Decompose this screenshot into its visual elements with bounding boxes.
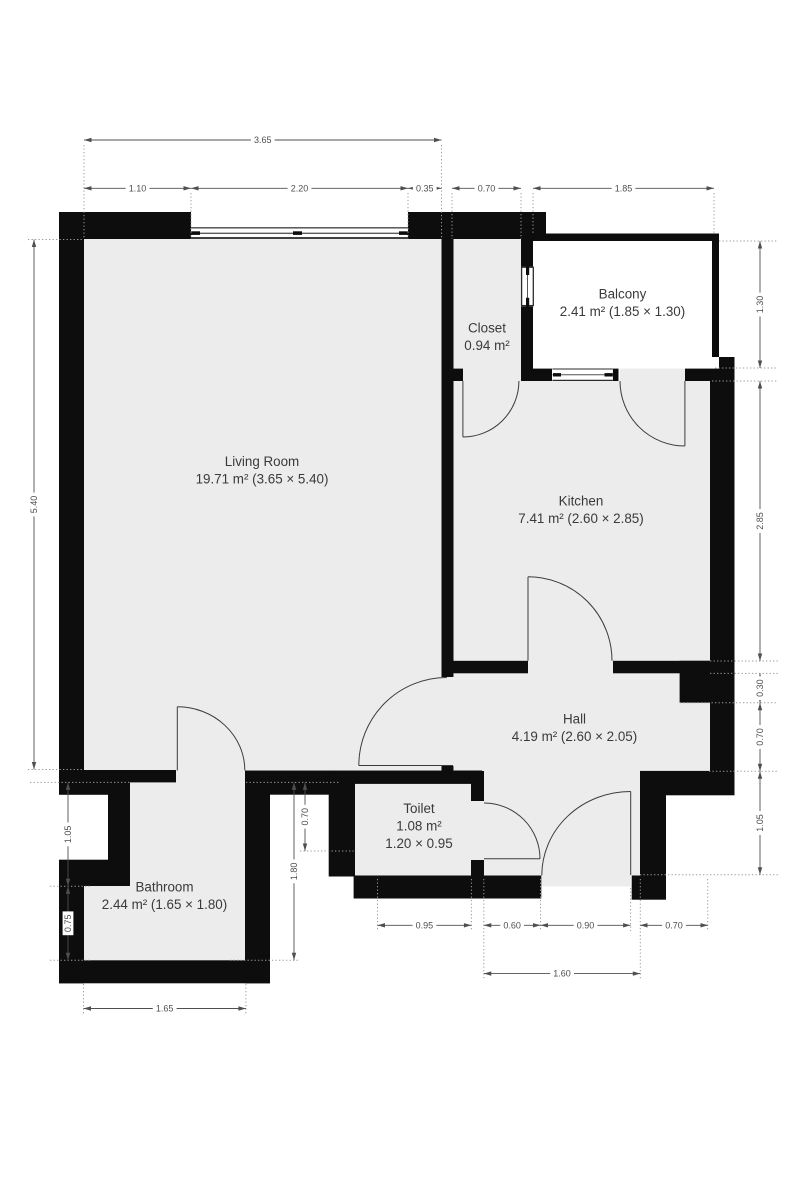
svg-text:19.71 m² (3.65 × 5.40): 19.71 m² (3.65 × 5.40): [196, 472, 329, 487]
svg-text:0.75: 0.75: [63, 915, 73, 933]
svg-text:2.85: 2.85: [755, 512, 765, 530]
svg-text:0.35: 0.35: [416, 183, 434, 193]
svg-text:Toilet: Toilet: [403, 801, 435, 816]
svg-text:0.95: 0.95: [416, 920, 434, 930]
svg-text:0.70: 0.70: [755, 728, 765, 746]
svg-text:1.05: 1.05: [63, 826, 73, 844]
svg-text:1.20 × 0.95: 1.20 × 0.95: [385, 836, 452, 851]
svg-text:1.65: 1.65: [156, 1004, 174, 1014]
svg-text:Balcony: Balcony: [599, 287, 647, 302]
svg-text:0.30: 0.30: [755, 679, 765, 697]
svg-text:1.80: 1.80: [289, 863, 299, 881]
svg-text:0.90: 0.90: [577, 920, 595, 930]
svg-text:0.70: 0.70: [665, 920, 683, 930]
svg-text:1.10: 1.10: [129, 183, 147, 193]
svg-text:0.94 m²: 0.94 m²: [464, 338, 510, 353]
svg-text:2.20: 2.20: [291, 183, 309, 193]
svg-text:1.05: 1.05: [755, 814, 765, 832]
svg-text:4.19 m² (2.60 × 2.05): 4.19 m² (2.60 × 2.05): [512, 729, 637, 744]
svg-text:Living Room: Living Room: [225, 454, 299, 469]
svg-text:0.60: 0.60: [503, 920, 521, 930]
svg-text:0.70: 0.70: [300, 808, 310, 826]
svg-text:2.41 m² (1.85 × 1.30): 2.41 m² (1.85 × 1.30): [560, 304, 685, 319]
svg-text:Kitchen: Kitchen: [559, 494, 604, 509]
svg-text:Hall: Hall: [563, 712, 586, 727]
svg-text:1.30: 1.30: [755, 296, 765, 314]
svg-text:3.65: 3.65: [254, 135, 272, 145]
svg-text:1.08 m²: 1.08 m²: [396, 819, 442, 834]
svg-text:Closet: Closet: [468, 321, 506, 336]
svg-text:5.40: 5.40: [29, 496, 39, 514]
svg-text:1.60: 1.60: [553, 969, 571, 979]
svg-text:7.41 m² (2.60 × 2.85): 7.41 m² (2.60 × 2.85): [518, 511, 643, 526]
svg-text:0.70: 0.70: [478, 183, 496, 193]
svg-text:Bathroom: Bathroom: [135, 880, 193, 895]
svg-text:2.44 m² (1.65 × 1.80): 2.44 m² (1.65 × 1.80): [102, 897, 227, 912]
svg-text:1.85: 1.85: [615, 183, 633, 193]
